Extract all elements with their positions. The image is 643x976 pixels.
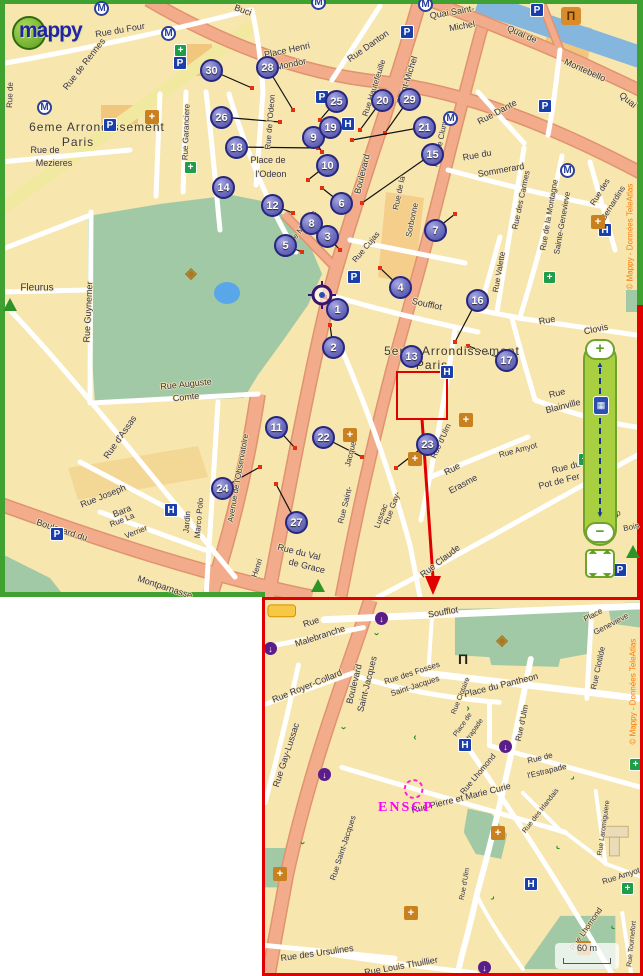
street-label: Rue de — [5, 82, 15, 108]
zoom-out-button[interactable]: − — [585, 522, 615, 543]
poi-marker-13[interactable]: 13 — [400, 345, 423, 368]
metro-icon: M — [560, 163, 575, 178]
monument-icon: Π — [454, 652, 472, 666]
parking-icon: P — [400, 25, 414, 39]
poi-marker-18[interactable]: 18 — [225, 136, 248, 159]
tree-icon — [3, 298, 17, 311]
zoom-in-button[interactable]: + — [585, 339, 615, 360]
zoom-control: + ▲ ▼ ▦ − — [581, 338, 621, 583]
poi-marker-12[interactable]: 12 — [261, 194, 284, 217]
street-label: Rue de — [30, 145, 59, 155]
poi-marker-26[interactable]: 26 — [210, 106, 233, 129]
street-label: Fleurus — [20, 283, 53, 294]
poi-marker-16[interactable]: 16 — [466, 289, 489, 312]
park-e — [626, 290, 637, 312]
poi-marker-5[interactable]: 5 — [274, 234, 297, 257]
poi-marker-29[interactable]: 29 — [398, 88, 421, 111]
poi-marker-24[interactable]: 24 — [211, 477, 234, 500]
location-dot — [291, 108, 295, 112]
location-dot — [320, 150, 324, 154]
inset-map: ENSCP 60 m © Mappy - Données TeleAtlas S… — [262, 597, 643, 976]
oneway-icon: ↓ — [264, 642, 277, 655]
parking-icon: P — [530, 3, 544, 17]
hospital-icon: H — [164, 503, 178, 517]
location-dot — [350, 138, 354, 142]
church-icon: + — [491, 826, 505, 840]
poi-marker-19[interactable]: 19 — [319, 116, 342, 139]
enscp-label: ENSCP — [378, 800, 434, 816]
metro-icon: M — [443, 111, 458, 126]
church-icon: + — [145, 110, 159, 124]
location-dot — [338, 248, 342, 252]
hospital-icon: H — [341, 117, 355, 131]
location-dot — [274, 482, 278, 486]
metro-icon: M — [37, 100, 52, 115]
pharmacy-icon: + — [184, 161, 197, 174]
poi-marker-7[interactable]: 7 — [424, 219, 447, 242]
poi-marker-17[interactable]: 17 — [495, 349, 518, 372]
pharmacy-icon: + — [621, 882, 634, 895]
inset-arrow-head — [425, 576, 441, 595]
greenarrow-icon: › — [372, 629, 382, 639]
location-dot — [394, 466, 398, 470]
oneway-icon: ↓ — [375, 612, 388, 625]
location-dot — [360, 455, 364, 459]
parking-icon: P — [173, 56, 187, 70]
poi-marker-22[interactable]: 22 — [312, 426, 335, 449]
location-dot — [293, 446, 297, 450]
location-dot — [328, 323, 332, 327]
poi-marker-23[interactable]: 23 — [416, 433, 439, 456]
zoom-scale-line — [599, 368, 601, 514]
street-label: l'Odeon — [256, 169, 287, 179]
hospital-icon: H — [524, 877, 538, 891]
parking-icon: P — [103, 118, 117, 132]
street-label: Jardin — [182, 511, 193, 533]
poi-marker-15[interactable]: 15 — [421, 143, 444, 166]
full-extent-button[interactable] — [585, 549, 615, 578]
street-label: Paris — [62, 135, 94, 149]
location-dot — [358, 128, 362, 132]
greenarrow-icon: › — [339, 723, 349, 733]
inset-basemap — [265, 600, 640, 973]
poi-marker-1[interactable]: 1 — [326, 298, 349, 321]
zoom-arrow-up-icon: ▲ — [596, 360, 604, 369]
poi-marker-20[interactable]: 20 — [371, 89, 394, 112]
compass-icon: ◈ — [183, 265, 199, 281]
oneway-icon: ↓ — [499, 740, 512, 753]
poi-marker-25[interactable]: 25 — [325, 90, 348, 113]
poi-marker-28[interactable]: 28 — [256, 56, 279, 79]
church-icon: + — [343, 428, 357, 442]
location-dot — [306, 178, 310, 182]
church-icon: + — [591, 215, 605, 229]
poi-marker-10[interactable]: 10 — [316, 154, 339, 177]
luxembourg-garden — [88, 195, 322, 403]
poi-marker-2[interactable]: 2 — [322, 336, 345, 359]
park-sw — [0, 553, 65, 597]
scale-text: 60 m — [577, 943, 597, 953]
location-dot — [291, 211, 295, 215]
tree-icon — [626, 545, 640, 558]
tree-icon — [311, 579, 325, 592]
church-icon: + — [459, 413, 473, 427]
location-dot — [360, 201, 364, 205]
pharmacy-icon: + — [543, 271, 556, 284]
parking-icon: P — [538, 99, 552, 113]
location-dot — [453, 212, 457, 216]
poi-marker-11[interactable]: 11 — [265, 416, 288, 439]
street-label: Mezieres — [36, 158, 73, 168]
scale-tick — [563, 958, 611, 964]
location-dot — [378, 266, 382, 270]
oneway-icon: ↓ — [478, 961, 491, 974]
main-map-copyright: © Mappy - Données TeleAtlas — [626, 170, 635, 290]
street-label: Place de — [250, 155, 285, 165]
church-icon: + — [404, 906, 418, 920]
compass-icon: ◈ — [494, 632, 510, 648]
poi-marker-21[interactable]: 21 — [413, 116, 436, 139]
expand-arrow-icon — [599, 550, 612, 563]
garden-pond — [214, 282, 240, 304]
poi-marker-8[interactable]: 8 — [300, 212, 323, 235]
poi-marker-6[interactable]: 6 — [330, 192, 353, 215]
greenarrow-icon: › — [410, 733, 420, 743]
poi-marker-4[interactable]: 4 — [389, 276, 412, 299]
location-dot — [278, 120, 282, 124]
parking-icon: P — [347, 270, 361, 284]
inset-copyright: © Mappy - Données TeleAtlas — [629, 625, 638, 745]
poi-marker-30[interactable]: 30 — [200, 59, 223, 82]
museum-icon: Π — [561, 7, 581, 25]
location-dot — [258, 465, 262, 469]
main-map[interactable]: mappy © Mappy - Données TeleAtlas + ▲ ▼ … — [0, 0, 643, 597]
church-icon: + — [273, 867, 287, 881]
mappy-map-page: mappy © Mappy - Données TeleAtlas + ▲ ▼ … — [0, 0, 643, 976]
location-dot — [250, 86, 254, 90]
greenarrow-icon: › — [298, 838, 308, 848]
hospital-icon: H — [440, 365, 454, 379]
mappy-logo-text: mappy — [19, 19, 82, 43]
expand-arrow-icon — [599, 565, 612, 578]
mappy-logo[interactable]: mappy — [12, 16, 112, 50]
poi-marker-27[interactable]: 27 — [285, 511, 308, 534]
poi-marker-14[interactable]: 14 — [212, 176, 235, 199]
hospital-icon: H — [458, 738, 472, 752]
pharmacy-icon: + — [629, 758, 642, 771]
location-dot — [300, 250, 304, 254]
zoom-slider-handle[interactable]: ▦ — [593, 396, 609, 415]
pharmacy-icon: + — [174, 44, 187, 57]
zoom-arrow-down-icon: ▼ — [596, 510, 604, 519]
scale-bar: 60 m — [555, 943, 619, 969]
parking-icon: P — [50, 527, 64, 541]
church-icon: + — [408, 452, 422, 466]
metro-icon: M — [161, 26, 176, 41]
location-dot — [320, 186, 324, 190]
greenarrow-icon: › — [463, 703, 473, 713]
oneway-icon: ↓ — [318, 768, 331, 781]
metro-icon: M — [94, 1, 109, 16]
